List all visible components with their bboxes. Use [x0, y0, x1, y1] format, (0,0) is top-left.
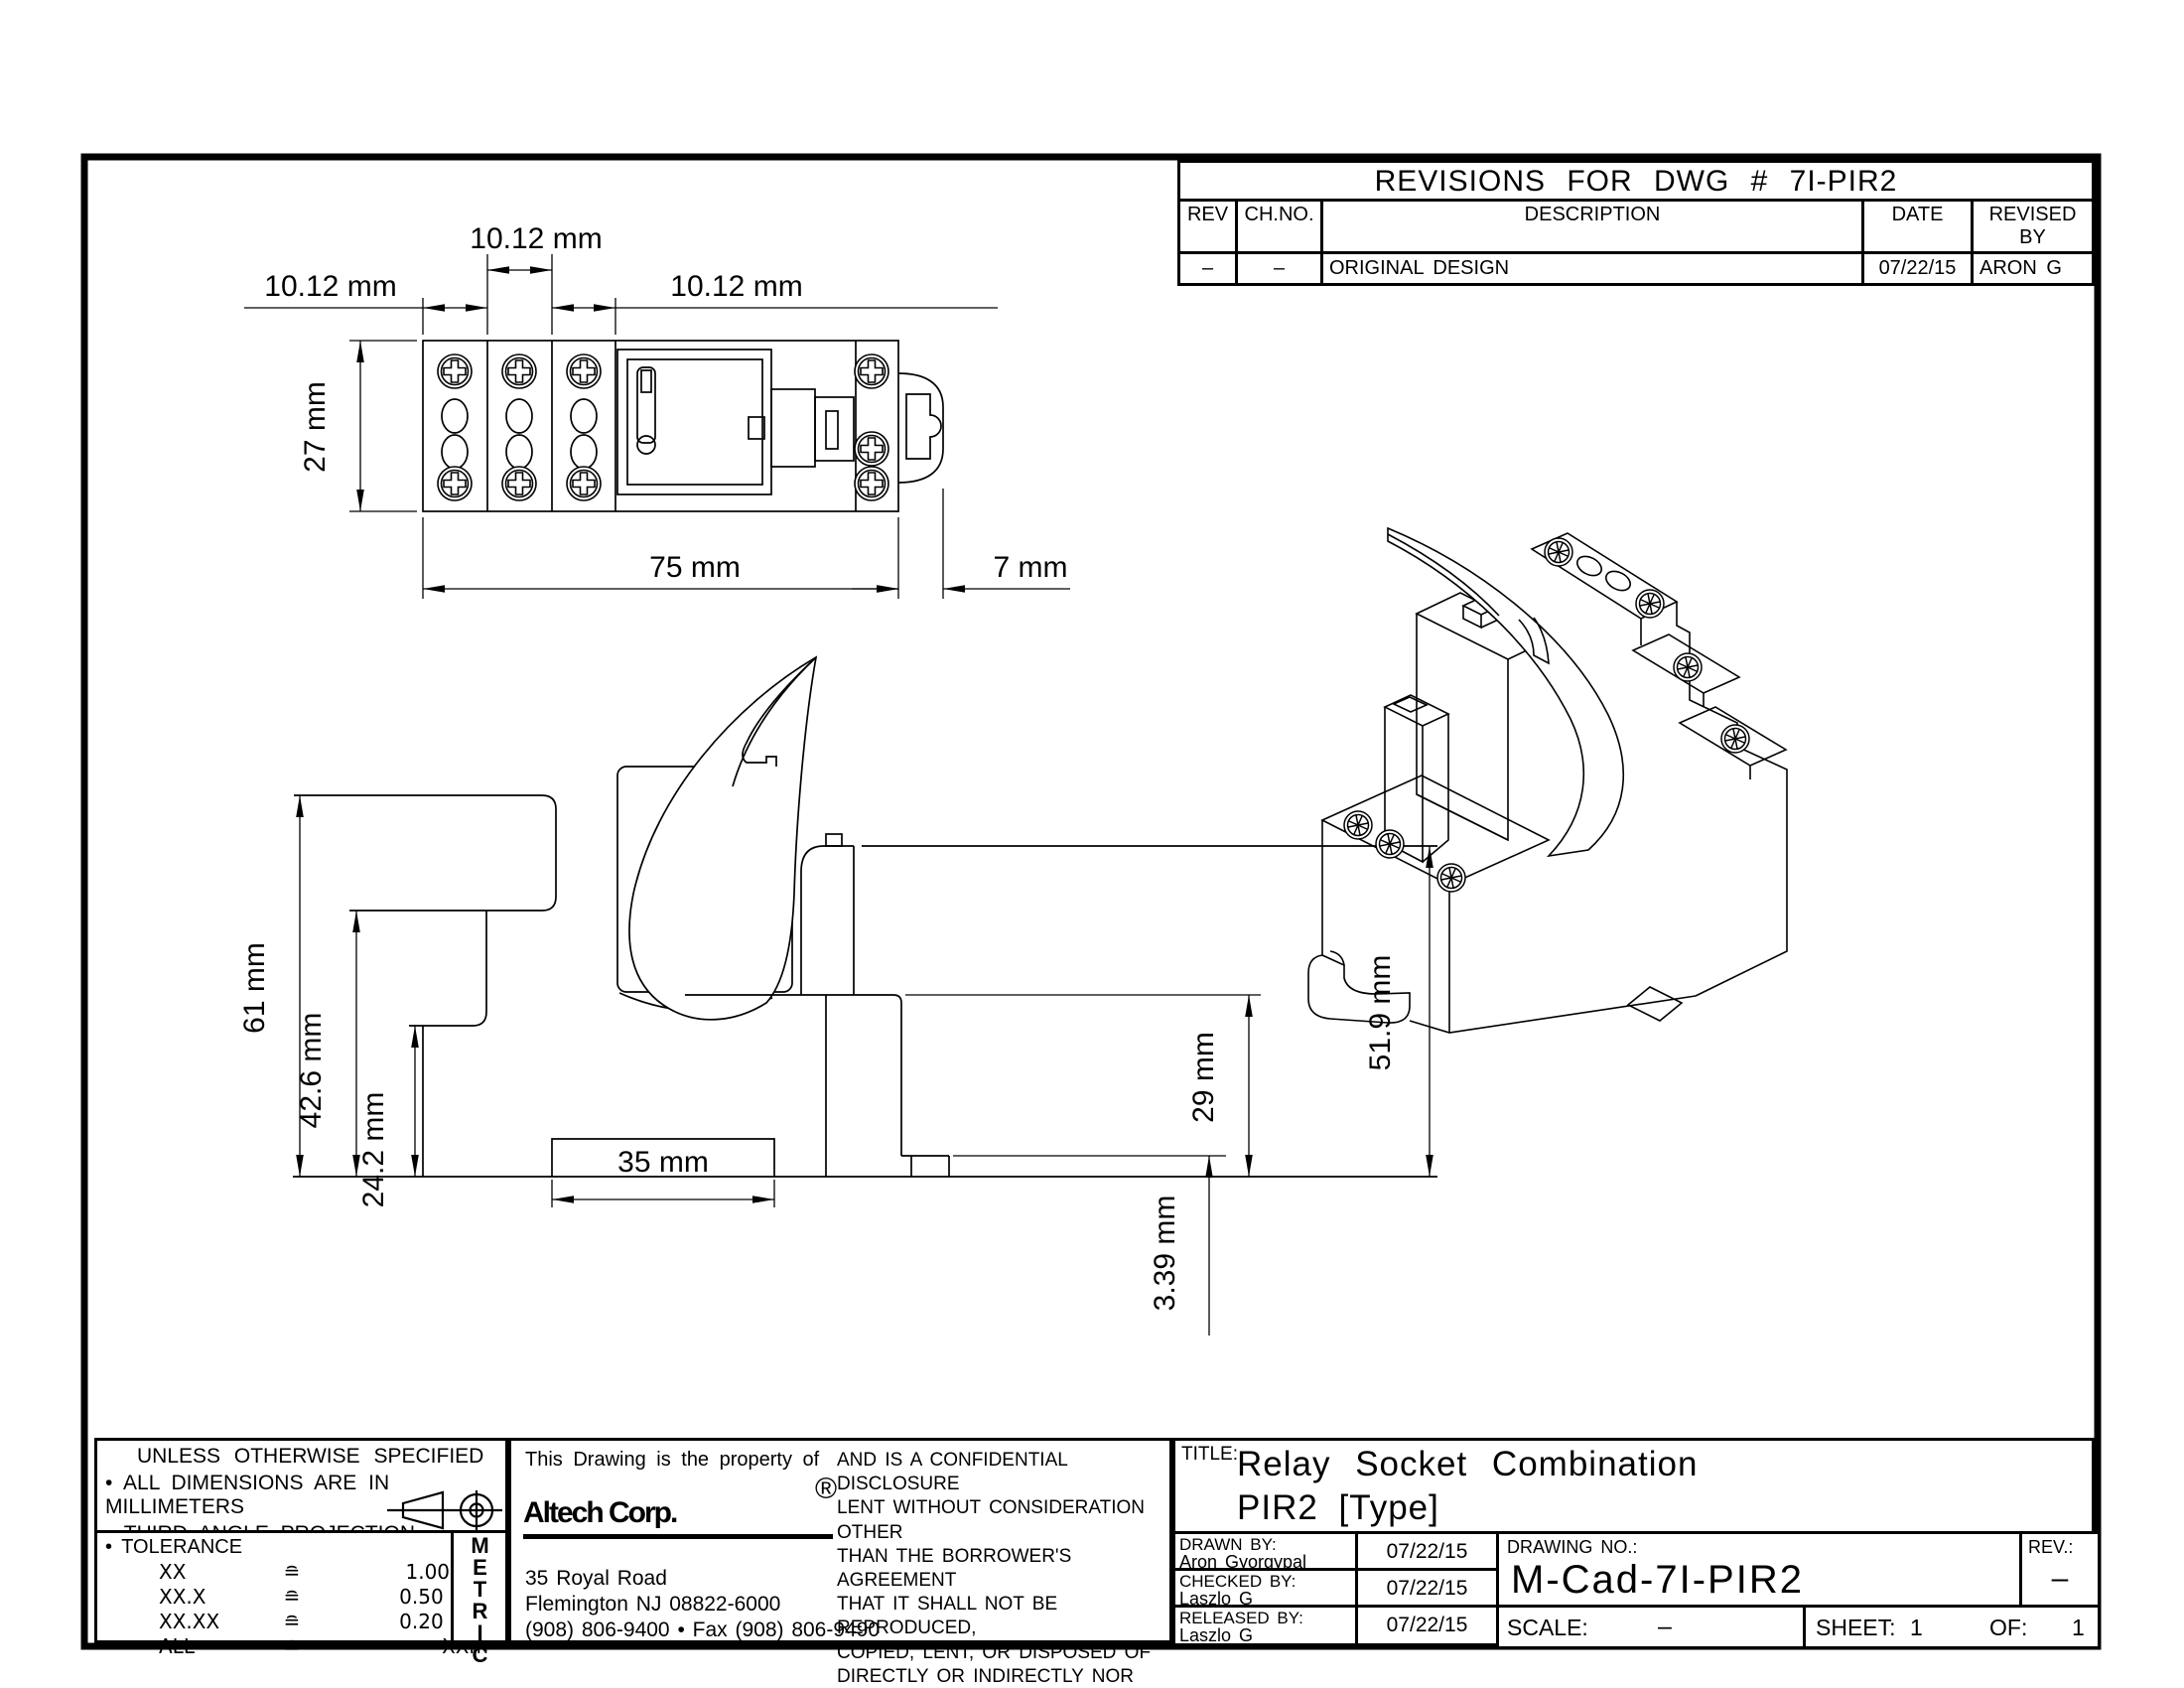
- property-line: This Drawing is the property of: [525, 1449, 819, 1472]
- top-view-dimensions: [244, 254, 1070, 599]
- rev-value: –: [2022, 1562, 2098, 1596]
- drawing-title-line1: Relay Socket Combination: [1237, 1445, 1698, 1484]
- dim-label-col2: 10.12 mm: [470, 222, 602, 255]
- rev-cell: REV.: –: [2022, 1534, 2098, 1608]
- screw-icon: [855, 432, 888, 466]
- sheet-label: SHEET:: [1816, 1615, 1896, 1641]
- checked-date-cell: 07/22/15: [1358, 1571, 1499, 1608]
- altech-logo: Altech Corp. ®: [521, 1475, 849, 1560]
- scale-label: SCALE:: [1507, 1615, 1588, 1641]
- tolerance-table: XX ≘ 1.00mm XX.X ≘ 0.50 mm XX.XX ≘ 0.20 …: [159, 1560, 491, 1658]
- tolerance-box: • TOLERANCE XX ≘ 1.00mm XX.X ≘ 0.50 mm X…: [94, 1530, 508, 1643]
- front-view: [293, 657, 1437, 1177]
- sheet-value: 1: [1910, 1615, 1923, 1641]
- registered-mark-icon: ®: [815, 1475, 837, 1505]
- revisions-data-row: – – ORIGINAL DESIGN 07/22/15 ARON G: [1180, 254, 2092, 283]
- coil-tower: [801, 846, 854, 995]
- title-block: TITLE: Relay Socket Combination PIR2 [Ty…: [1172, 1438, 2095, 1643]
- released-date-cell: 07/22/15: [1358, 1608, 1499, 1643]
- tolerance-symbol: ≘: [266, 1634, 318, 1658]
- screw-icon: [438, 467, 472, 500]
- notes-heading: UNLESS OTHERWISE SPECIFIED: [137, 1445, 505, 1469]
- screw-icon: [1376, 830, 1404, 858]
- screw-icon: [1674, 653, 1702, 681]
- metric-box: METRIC: [451, 1530, 508, 1643]
- scale-value: –: [1658, 1613, 1672, 1641]
- screw-icon: [855, 467, 888, 500]
- revision-description-value: ORIGINAL DESIGN: [1323, 254, 1864, 283]
- checked-by-name: Laszlo G: [1179, 1589, 1253, 1610]
- dim-label-height: 27 mm: [299, 381, 332, 473]
- of-value: 1: [2072, 1615, 2085, 1641]
- rev-label: REV.:: [2028, 1537, 2073, 1558]
- revision-date-value: 07/22/15: [1864, 254, 1974, 283]
- released-by-name: Laszlo G: [1179, 1625, 1253, 1646]
- tolerance-heading: • TOLERANCE: [105, 1536, 242, 1559]
- dim-label-tab: 7 mm: [994, 551, 1068, 584]
- tolerance-name: ALL: [159, 1634, 266, 1658]
- tolerance-symbol: ≘: [266, 1610, 318, 1633]
- revisions-header-description: DESCRIPTION: [1323, 202, 1864, 254]
- tolerance-name: XX.XX: [159, 1610, 266, 1633]
- top-view: [423, 341, 943, 511]
- title-cell: TITLE: Relay Socket Combination PIR2 [Ty…: [1175, 1441, 2092, 1534]
- dim-label-rail-width: 35 mm: [617, 1146, 709, 1179]
- screw-icon: [502, 354, 536, 388]
- din-clip-tab: [898, 373, 943, 483]
- address-line1: 35 Royal Road: [525, 1566, 880, 1592]
- dim-label-mid-height: 42.6 mm: [295, 1013, 328, 1129]
- screw-icon: [1437, 864, 1465, 892]
- revisions-table: REVISIONS FOR DWG # 7I-PIR2 REV CH.NO. D…: [1177, 160, 2095, 286]
- screw-icon: [567, 467, 601, 500]
- drawing-title-line2: PIR2 [Type]: [1237, 1488, 1439, 1528]
- front-view-dimensions: [300, 795, 1430, 1336]
- third-angle-projection-icon: [385, 1488, 504, 1532]
- dim-label-col1: 10.12 mm: [264, 270, 396, 303]
- title-label: TITLE:: [1181, 1444, 1238, 1466]
- screw-icon: [1344, 811, 1372, 839]
- screw-icon: [502, 467, 536, 500]
- revision-revised-by-value: ARON G: [1974, 254, 2092, 283]
- tolerance-symbol: ≘: [266, 1560, 318, 1584]
- metric-label: METRIC: [454, 1533, 505, 1640]
- company-address: 35 Royal Road Flemington NJ 08822-6000 (…: [525, 1566, 880, 1643]
- scale-cell: SCALE: –: [1499, 1608, 1806, 1646]
- address-line3: (908) 806-9400 • Fax (908) 806-9490: [525, 1618, 880, 1643]
- front-view-dim-labels: 61 mm 42.6 mm 24.2 mm 35 mm 29 mm 51.9 m…: [238, 942, 1397, 1311]
- screw-icon: [438, 354, 472, 388]
- revision-rev-value: –: [1180, 254, 1238, 283]
- screw-icon: [1545, 538, 1572, 566]
- revision-chno-value: –: [1238, 254, 1323, 283]
- drawing-number-value: M-Cad-7I-PIR2: [1511, 1558, 1804, 1603]
- dim-label-low-height: 24.2 mm: [357, 1092, 390, 1208]
- altech-logo-text: Altech Corp.: [523, 1496, 677, 1529]
- retaining-clip: [629, 657, 816, 1020]
- general-notes-box: UNLESS OTHERWISE SPECIFIED • ALL DIMENSI…: [94, 1438, 508, 1533]
- top-view-dim-labels: 10.12 mm 10.12 mm 10.12 mm 27 mm 75 mm 7…: [264, 222, 1067, 584]
- dim-label-right-height: 51.9 mm: [1364, 955, 1397, 1071]
- drawn-date-cell: 07/22/15: [1358, 1534, 1499, 1571]
- checked-by-cell: CHECKED BY: Laszlo G: [1175, 1571, 1358, 1608]
- drawn-by-cell: DRAWN BY: Aron Gyorgypal: [1175, 1534, 1358, 1571]
- dim-label-right-step: 29 mm: [1187, 1032, 1220, 1123]
- sheet-border: [84, 157, 2098, 1646]
- dim-label-col3: 10.12 mm: [670, 270, 802, 303]
- sheet-cell: SHEET: 1 OF: 1: [1806, 1608, 2098, 1646]
- tolerance-symbol: ≘: [266, 1585, 318, 1609]
- company-box: This Drawing is the property of Altech C…: [508, 1438, 1172, 1643]
- revisions-header-revised-by: REVISED BY: [1974, 202, 2092, 254]
- revisions-header-date: DATE: [1864, 202, 1974, 254]
- screw-icon: [855, 354, 888, 388]
- revisions-title: REVISIONS FOR DWG # 7I-PIR2: [1180, 163, 2092, 202]
- drawn-by-name: Aron Gyorgypal: [1179, 1552, 1306, 1573]
- screw-icon: [1636, 590, 1664, 618]
- drawing-sheet: 10.12 mm 10.12 mm 10.12 mm 27 mm 75 mm 7…: [0, 0, 2184, 1688]
- released-by-cell: RELEASED BY: Laszlo G: [1175, 1608, 1358, 1643]
- tolerance-name: XX: [159, 1560, 266, 1584]
- dim-label-total-height: 61 mm: [238, 942, 271, 1034]
- drawing-number-label: DRAWING NO.:: [1507, 1537, 1637, 1558]
- drawing-number-cell: DRAWING NO.: M-Cad-7I-PIR2: [1499, 1534, 2022, 1608]
- screw-icon: [567, 354, 601, 388]
- revisions-header-row: REV CH.NO. DESCRIPTION DATE REVISED BY: [1180, 202, 2092, 254]
- revisions-header-rev: REV: [1180, 202, 1238, 254]
- revisions-header-chno: CH.NO.: [1238, 202, 1323, 254]
- confidential-disclosure: AND IS A CONFIDENTIAL DISCLOSURE LENT WI…: [837, 1449, 1169, 1688]
- tolerance-name: XX.X: [159, 1585, 266, 1609]
- address-line2: Flemington NJ 08822-6000: [525, 1592, 880, 1618]
- of-label: OF:: [1989, 1615, 2027, 1641]
- dim-label-width: 75 mm: [649, 551, 741, 584]
- dim-label-foot: 3.39 mm: [1149, 1196, 1181, 1312]
- screw-icon: [1721, 725, 1749, 753]
